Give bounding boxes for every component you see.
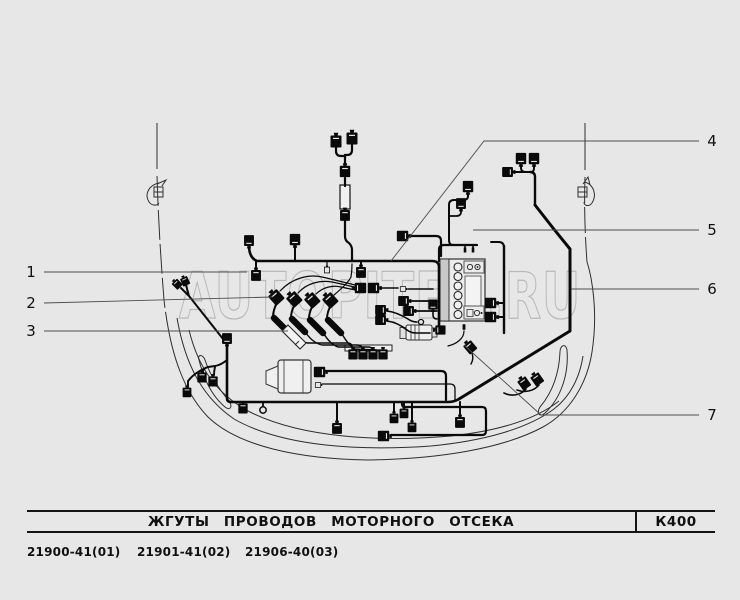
connector-body	[244, 235, 254, 246]
callout-number: 1	[26, 263, 36, 281]
wire-connector	[222, 333, 232, 346]
wire-connector	[332, 421, 342, 434]
callout-number: 6	[707, 280, 717, 298]
connector-body	[378, 349, 387, 359]
wire-connector	[529, 370, 545, 387]
connector-pin	[433, 328, 435, 332]
connector-pin	[386, 318, 388, 322]
harness-path	[322, 384, 455, 400]
diagram-shape	[266, 366, 278, 389]
connector-pin	[247, 246, 251, 248]
connector-pin	[200, 370, 204, 372]
wire-connector	[340, 163, 350, 177]
callout-number: 3	[26, 322, 36, 340]
harness-path	[345, 143, 352, 155]
connector-pin	[211, 374, 215, 376]
connector-pin	[466, 192, 470, 195]
connector-pin	[392, 411, 396, 413]
connector-pin	[414, 309, 416, 313]
harness-path	[471, 353, 473, 364]
connector-body	[324, 267, 329, 273]
wire-connector	[397, 231, 411, 241]
connector-body	[464, 248, 467, 253]
harness-path	[324, 334, 372, 349]
connector-pin	[351, 347, 355, 349]
connector-pin	[458, 415, 462, 417]
diagram-shape	[278, 360, 311, 393]
connector-pin	[359, 265, 363, 267]
connector-body	[485, 298, 496, 308]
connector-body	[183, 388, 192, 398]
wire-connector	[463, 181, 473, 195]
connector-pin	[496, 315, 499, 319]
connector-body	[222, 333, 232, 344]
connector-body	[238, 403, 247, 413]
connector-body	[340, 166, 350, 177]
connector-pin	[431, 310, 435, 312]
callout-number: 5	[707, 221, 717, 239]
wire-connector	[400, 406, 409, 418]
connector-body	[251, 270, 261, 281]
connector-body	[428, 299, 437, 309]
connector-body	[403, 306, 414, 316]
connector-body	[208, 376, 217, 386]
wire-connector	[244, 235, 254, 248]
callout-number: 2	[26, 294, 36, 312]
wire-connector	[456, 198, 466, 211]
sheet-title: ЖГУТЫ ПРОВОДОВ МОТОРНОГО ОТСЕКА	[27, 512, 635, 531]
diagram-shape	[340, 185, 350, 209]
connector-body	[485, 312, 496, 322]
wire-connector	[463, 324, 466, 330]
connector-body	[368, 283, 379, 293]
wire-connector	[390, 411, 399, 423]
connector-body	[400, 409, 409, 419]
connector-pin	[254, 268, 258, 270]
connector-body	[347, 133, 358, 145]
connector-pin	[381, 347, 385, 349]
connector-pin	[371, 347, 375, 349]
diagram-shape	[454, 263, 462, 271]
connector-body	[331, 136, 342, 148]
wire-connector	[347, 130, 358, 145]
connector-pin	[361, 347, 365, 349]
connector-body	[390, 414, 399, 424]
diagram-shape	[477, 266, 479, 268]
connector-body	[435, 325, 445, 334]
sheet-code: К400	[635, 512, 715, 531]
connector-pin	[496, 301, 499, 305]
harness-path	[227, 344, 459, 402]
wire-connector	[516, 153, 526, 167]
body-line	[157, 180, 166, 186]
diagram-shape	[454, 282, 462, 290]
connector-pin	[350, 130, 355, 133]
connector-body	[290, 234, 300, 245]
connector-body	[375, 305, 386, 315]
connector-pin	[410, 420, 414, 422]
harness-path	[409, 236, 441, 256]
wire-connector	[472, 248, 475, 253]
connector-pin	[225, 344, 229, 346]
connector-body	[340, 210, 350, 221]
wire-connector	[183, 385, 192, 397]
connector-pin	[386, 308, 388, 312]
diagram-shape	[454, 292, 462, 300]
connector-pin	[389, 434, 392, 438]
body-line	[154, 187, 163, 197]
connector-body	[358, 349, 367, 359]
wire-connector	[331, 133, 342, 148]
callout-number: 4	[707, 132, 717, 150]
connector-body	[197, 372, 206, 382]
harness-path	[530, 172, 535, 205]
connector-body	[463, 324, 466, 330]
harness-path	[337, 402, 460, 422]
connector-pin	[334, 133, 339, 136]
connector-pin	[343, 163, 347, 166]
connector-body	[502, 167, 513, 177]
wire-connector	[464, 248, 467, 253]
wire-connector	[290, 234, 300, 248]
connector-body	[408, 423, 417, 433]
connector-body	[348, 349, 357, 359]
part-number: 21900-41(01)	[27, 545, 121, 559]
wire-connector	[529, 153, 539, 167]
diagram-shape	[454, 301, 462, 309]
part-number: 21901-41(02)	[137, 545, 231, 559]
diagram-shape	[454, 273, 462, 281]
connector-pin	[409, 299, 411, 303]
harness-path	[491, 242, 504, 248]
wire-connector	[340, 208, 350, 221]
connector-pin	[402, 406, 406, 408]
diagram-shape	[465, 276, 481, 309]
wire-connector	[315, 383, 322, 388]
connector-pin	[185, 385, 189, 387]
wire-connector	[314, 367, 328, 377]
harness-path	[324, 371, 446, 400]
ring-terminal	[260, 407, 266, 413]
connector-body	[463, 181, 473, 192]
callout-leader	[391, 141, 699, 261]
wire-connector	[502, 167, 515, 177]
connector-body	[356, 267, 366, 278]
connector-body	[456, 198, 466, 209]
diagram-shape	[481, 312, 483, 314]
wire-connector	[378, 431, 392, 441]
connector-pin	[241, 401, 245, 403]
connector-body	[314, 367, 325, 377]
connector-body	[355, 283, 366, 293]
connector-pin	[343, 208, 347, 210]
connector-pin	[519, 164, 523, 167]
wire-connector	[208, 374, 217, 386]
connector-pin	[293, 245, 297, 248]
connector-body	[455, 417, 465, 428]
body-line	[584, 182, 594, 206]
connector-body	[516, 153, 526, 164]
connector-pin	[325, 370, 328, 374]
callout-leader	[464, 345, 699, 415]
diagram-shape	[454, 311, 462, 319]
connector-pin	[532, 164, 536, 167]
connector-body	[400, 287, 405, 292]
connector-body	[378, 431, 389, 441]
connector-pin	[459, 209, 463, 211]
connector-body	[315, 383, 320, 388]
diagram-shape	[440, 259, 449, 321]
wire-connector	[461, 338, 477, 354]
catalog-sheet: AUTOPITER.RU1234567 ЖГУТЫ ПРОВОДОВ МОТОР…	[0, 0, 740, 600]
title-bar: ЖГУТЫ ПРОВОДОВ МОТОРНОГО ОТСЕКА К400	[27, 510, 715, 533]
connector-body	[529, 153, 539, 164]
wire-connector	[408, 420, 417, 432]
connector-body	[398, 296, 409, 306]
wire-connector	[516, 374, 532, 391]
part-number: 21906-40(03)	[245, 545, 339, 559]
wire-connector	[455, 415, 465, 428]
body-line	[578, 187, 587, 197]
connector-body	[375, 315, 386, 325]
part-number-list: 21900-41(01) 21901-41(02) 21906-40(03)	[0, 545, 740, 563]
connector-pin	[352, 286, 355, 290]
connector-body	[332, 423, 342, 434]
connector-body	[472, 248, 475, 253]
connector-body	[368, 349, 377, 359]
connector-body	[397, 231, 408, 241]
connector-pin	[513, 170, 515, 174]
connector-pin	[335, 421, 339, 423]
connector-pin	[379, 286, 382, 290]
callout-number: 7	[707, 406, 717, 424]
wire-connector	[260, 407, 266, 413]
harness-path	[345, 221, 352, 261]
